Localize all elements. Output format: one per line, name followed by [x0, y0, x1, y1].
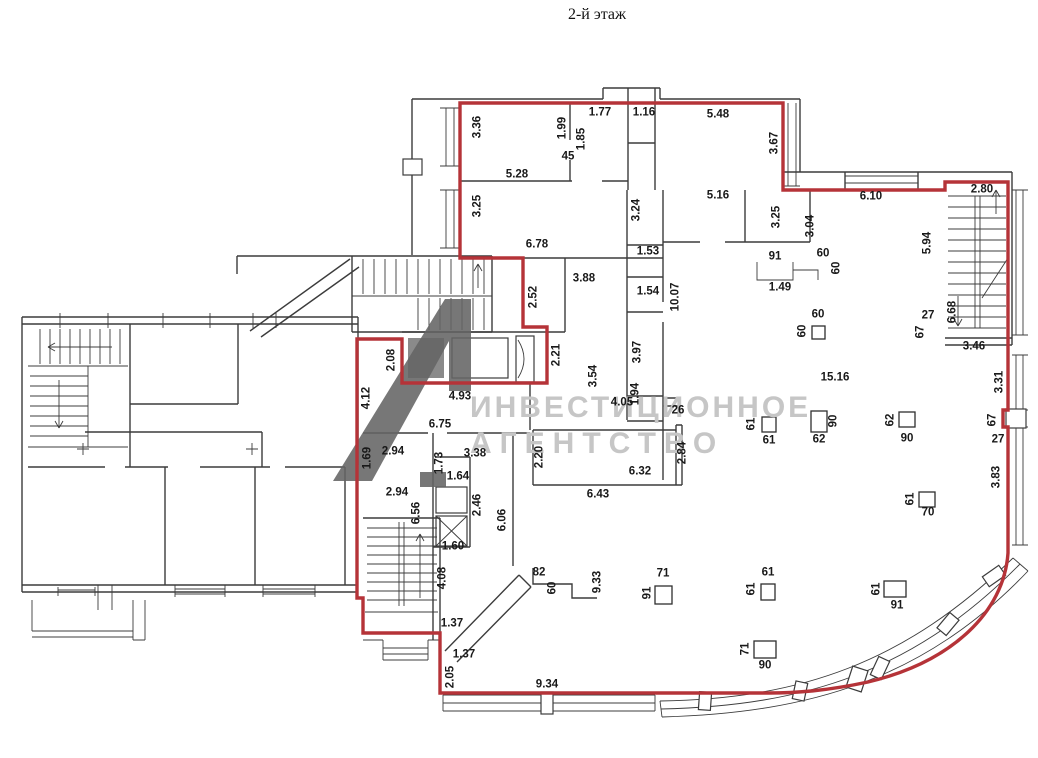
dim-label: 1.73 — [434, 452, 446, 474]
dim-label: 6.32 — [629, 466, 651, 478]
dim-label: 1.37 — [453, 649, 475, 661]
dim-label: 1.60 — [442, 541, 464, 553]
dimension-labels-layer: 1.771.165.48455.286.102.805.166.781.5391… — [0, 0, 1038, 758]
dim-label: 4.08 — [437, 567, 449, 589]
dim-label: 6.06 — [497, 509, 509, 531]
dim-label: 3.88 — [573, 273, 595, 285]
dim-label: 27 — [922, 310, 935, 322]
dim-label: 61 — [746, 418, 758, 431]
dim-label: 2.52 — [528, 286, 540, 308]
dim-label: 9.33 — [592, 571, 604, 593]
dim-label: 71 — [657, 568, 670, 580]
dim-label: 6.56 — [411, 502, 423, 524]
dim-label: 4.93 — [449, 391, 471, 403]
dim-label: 3.97 — [632, 341, 644, 363]
dim-label: 62 — [885, 414, 897, 427]
dim-label: 3.24 — [631, 199, 643, 221]
dim-label: 3.25 — [771, 206, 783, 228]
dim-label: 90 — [759, 660, 772, 672]
dim-label: 45 — [562, 151, 575, 163]
dim-label: 60 — [797, 325, 809, 338]
dim-label: 61 — [871, 583, 883, 596]
dim-label: 5.28 — [506, 169, 528, 181]
dim-label: 3.04 — [805, 215, 817, 237]
dim-label: 3.83 — [991, 466, 1003, 488]
dim-label: 3.54 — [588, 365, 600, 387]
dim-label: 91 — [642, 587, 654, 600]
dim-label: 5.48 — [707, 109, 729, 121]
dim-label: 2.84 — [677, 442, 689, 464]
dim-label: 3.46 — [963, 341, 985, 353]
dim-label: 3.25 — [472, 195, 484, 217]
dim-label: 71 — [740, 643, 752, 656]
dim-label: 70 — [922, 507, 935, 519]
dim-label: 61 — [905, 493, 917, 506]
dim-label: 5.94 — [922, 232, 934, 254]
dim-label: 1.77 — [589, 107, 611, 119]
dim-label: 26 — [672, 405, 685, 417]
dim-label: 67 — [987, 414, 999, 427]
dim-label: 90 — [901, 433, 914, 445]
dim-label: 3.38 — [464, 448, 486, 460]
dim-label: 1.64 — [447, 471, 469, 483]
dim-label: 15.16 — [821, 372, 850, 384]
dim-label: 1.54 — [637, 286, 659, 298]
dim-label: 3.36 — [472, 116, 484, 138]
dim-label: 2.94 — [382, 446, 404, 458]
dim-label: 1.85 — [576, 128, 588, 150]
dim-label: 5.16 — [707, 190, 729, 202]
dim-label: 6.78 — [526, 239, 548, 251]
dim-label: 82 — [533, 567, 546, 579]
dim-label: 2.46 — [472, 494, 484, 516]
dim-label: 62 — [813, 434, 826, 446]
dim-label: 2.20 — [534, 446, 546, 468]
dim-label: 1.16 — [633, 107, 655, 119]
dim-label: 6.75 — [429, 419, 451, 431]
dim-label: 60 — [817, 248, 830, 260]
dim-label: 27 — [992, 434, 1005, 446]
dim-label: 2.05 — [445, 666, 457, 688]
dim-label: 2.08 — [386, 349, 398, 371]
dim-label: 1.99 — [557, 117, 569, 139]
dim-label: 9.34 — [536, 679, 558, 691]
dim-label: 2.21 — [551, 344, 563, 366]
dim-label: 61 — [763, 435, 776, 447]
dim-label: 61 — [746, 583, 758, 596]
floorplan-page: 2-й этаж — [0, 0, 1038, 758]
dim-label: 2.80 — [971, 184, 993, 196]
dim-label: 4.12 — [361, 387, 373, 409]
dim-label: 2.94 — [386, 487, 408, 499]
dim-label: 67 — [915, 326, 927, 339]
dim-label: 61 — [762, 567, 775, 579]
dim-label: 6.10 — [860, 191, 882, 203]
dim-label: 3.67 — [769, 132, 781, 154]
dim-label: 6.68 — [947, 301, 959, 323]
dim-label: 91 — [769, 251, 782, 263]
dim-label: 1.94 — [630, 383, 642, 405]
dim-label: 1.49 — [769, 282, 791, 294]
dim-label: 60 — [812, 309, 825, 321]
dim-label: 10.07 — [670, 283, 682, 312]
dim-label: 91 — [891, 600, 904, 612]
dim-label: 3.31 — [994, 371, 1006, 393]
dim-label: 60 — [831, 262, 843, 275]
dim-label: 1.69 — [362, 447, 374, 469]
dim-label: 1.37 — [441, 618, 463, 630]
dim-label: 1.53 — [637, 246, 659, 258]
dim-label: 90 — [828, 415, 840, 428]
dim-label: 6.43 — [587, 489, 609, 501]
dim-label: 60 — [547, 582, 559, 595]
